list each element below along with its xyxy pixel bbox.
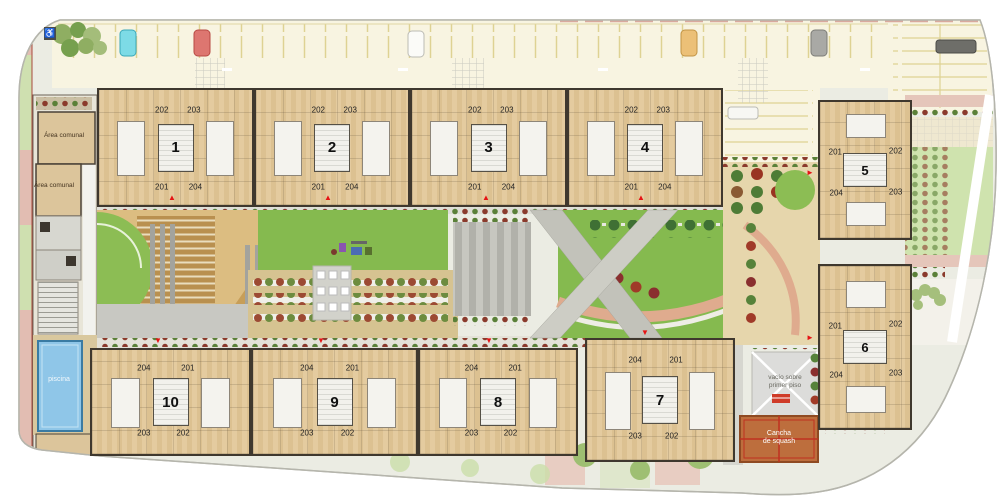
atrium — [430, 121, 458, 176]
unit-label: 203 — [889, 187, 902, 196]
unit-label: 201 — [181, 363, 194, 372]
atrium — [206, 121, 234, 176]
unit-label: 201 — [625, 182, 638, 191]
cancha-squash-label: Cancha de squash — [744, 430, 814, 447]
building-5: 5 201 202 204 203 — [818, 100, 912, 240]
building-9-number: 9 — [317, 378, 353, 426]
unit-label: 203 — [657, 105, 670, 114]
unit-label: 202 — [665, 432, 678, 441]
vacio-label-line2: primer piso — [748, 382, 822, 390]
entrance-arrow-down-icon: ▼ — [641, 329, 649, 337]
unit-label: 201 — [829, 321, 842, 330]
building-8: 8 204 201 203 202 — [418, 348, 578, 456]
car-cyan — [120, 30, 136, 56]
atrium — [846, 114, 886, 138]
entrance-arrow-up-icon: ▲ — [324, 194, 332, 202]
unit-label: 202 — [889, 320, 902, 329]
floor-plan: 1 202 203 201 204 2 202 203 201 204 3 20… — [0, 0, 1000, 500]
unit-label: 202 — [176, 429, 189, 438]
building-7-number: 7 — [642, 376, 678, 424]
unit-label: 203 — [889, 368, 902, 377]
unit-label: 204 — [628, 356, 641, 365]
building-7: 7 204 201 203 202 — [585, 338, 735, 462]
atrium — [273, 378, 303, 428]
atrium — [274, 121, 302, 176]
atrium — [367, 378, 397, 428]
car-white — [408, 31, 424, 57]
area-comunal-upper-label: Área comunal — [40, 132, 88, 140]
atrium — [201, 378, 230, 428]
unit-label: 204 — [189, 182, 202, 191]
east-gardens — [905, 95, 993, 345]
entrance-arrow-up-icon: ▲ — [168, 194, 176, 202]
building-10: 10 204 201 203 202 — [90, 348, 251, 456]
pool — [38, 341, 82, 431]
atrium — [846, 281, 886, 309]
entrance-arrow-down-icon: ▼ — [317, 337, 325, 345]
piscina-label: piscina — [36, 376, 82, 384]
car-tan — [681, 30, 697, 56]
unit-label: 203 — [187, 105, 200, 114]
building-8-number: 8 — [480, 378, 516, 426]
atrium — [362, 121, 390, 176]
atrium — [605, 372, 632, 429]
building-5-number: 5 — [843, 153, 887, 187]
atrium — [675, 121, 703, 176]
unit-label: 204 — [345, 182, 358, 191]
building-6-number: 6 — [843, 330, 887, 364]
car-dark — [936, 40, 976, 53]
unit-label: 201 — [829, 148, 842, 157]
unit-label: 201 — [346, 363, 359, 372]
unit-label: 204 — [137, 363, 150, 372]
unit-label: 203 — [628, 432, 641, 441]
entrance-arrow-up-icon: ▲ — [482, 194, 490, 202]
communal-wing — [33, 95, 97, 462]
vacio-label: vacío sobre primer piso — [748, 374, 822, 390]
unit-label: 204 — [830, 370, 843, 379]
unit-label: 204 — [658, 182, 671, 191]
atrium — [439, 378, 468, 428]
unit-label: 201 — [508, 363, 521, 372]
atrium — [846, 386, 886, 414]
entrance-arrow-right-icon: ► — [806, 169, 814, 177]
unit-label: 204 — [830, 189, 843, 198]
unit-label: 201 — [468, 182, 481, 191]
unit-label: 201 — [312, 182, 325, 191]
unit-label: 202 — [889, 146, 902, 155]
building-1: 1 202 203 201 204 — [97, 88, 254, 207]
atrium — [689, 372, 716, 429]
atrium — [587, 121, 615, 176]
unit-label: 203 — [500, 105, 513, 114]
unit-label: 204 — [465, 363, 478, 372]
unit-label: 202 — [504, 429, 517, 438]
entrance-arrow-right-icon: ► — [806, 334, 814, 342]
building-10-number: 10 — [153, 378, 189, 426]
entrance-arrow-down-icon: ▼ — [485, 337, 493, 345]
unit-label: 203 — [137, 429, 150, 438]
building-6: 6 201 202 204 203 — [818, 264, 912, 430]
unit-label: 204 — [300, 363, 313, 372]
atrium — [846, 202, 886, 226]
building-9: 9 204 201 203 202 — [251, 348, 418, 456]
building-3-number: 3 — [471, 124, 507, 172]
cancha-label-line2: de squash — [744, 438, 814, 446]
atrium — [111, 378, 140, 428]
entrance-arrow-down-icon: ▼ — [154, 337, 162, 345]
vacio-label-line1: vacío sobre — [748, 374, 822, 382]
unit-label: 202 — [312, 105, 325, 114]
car-gray — [811, 30, 827, 56]
entrance-arrow-up-icon: ▲ — [637, 194, 645, 202]
building-2: 2 202 203 201 204 — [254, 88, 410, 207]
area-comunal-lower-label: Área comunal — [30, 182, 78, 190]
atrium — [519, 121, 547, 176]
unit-label: 202 — [155, 105, 168, 114]
unit-label: 201 — [669, 356, 682, 365]
unit-label: 201 — [155, 182, 168, 191]
unit-label: 203 — [300, 429, 313, 438]
atrium — [117, 121, 145, 176]
unit-label: 202 — [468, 105, 481, 114]
building-4-number: 4 — [627, 124, 663, 172]
building-4: 4 202 203 201 204 — [567, 88, 723, 207]
car-white-2 — [728, 107, 758, 119]
unit-label: 202 — [341, 429, 354, 438]
unit-label: 204 — [502, 182, 515, 191]
unit-label: 202 — [625, 105, 638, 114]
accessible-parking-icon: ♿ — [44, 27, 56, 40]
atrium — [529, 378, 558, 428]
unit-label: 203 — [465, 429, 478, 438]
car-red — [194, 30, 210, 56]
cancha-label-line1: Cancha — [744, 430, 814, 438]
building-2-number: 2 — [314, 124, 350, 172]
unit-label: 203 — [344, 105, 357, 114]
building-3: 3 202 203 201 204 — [410, 88, 567, 207]
building-1-number: 1 — [158, 124, 194, 172]
